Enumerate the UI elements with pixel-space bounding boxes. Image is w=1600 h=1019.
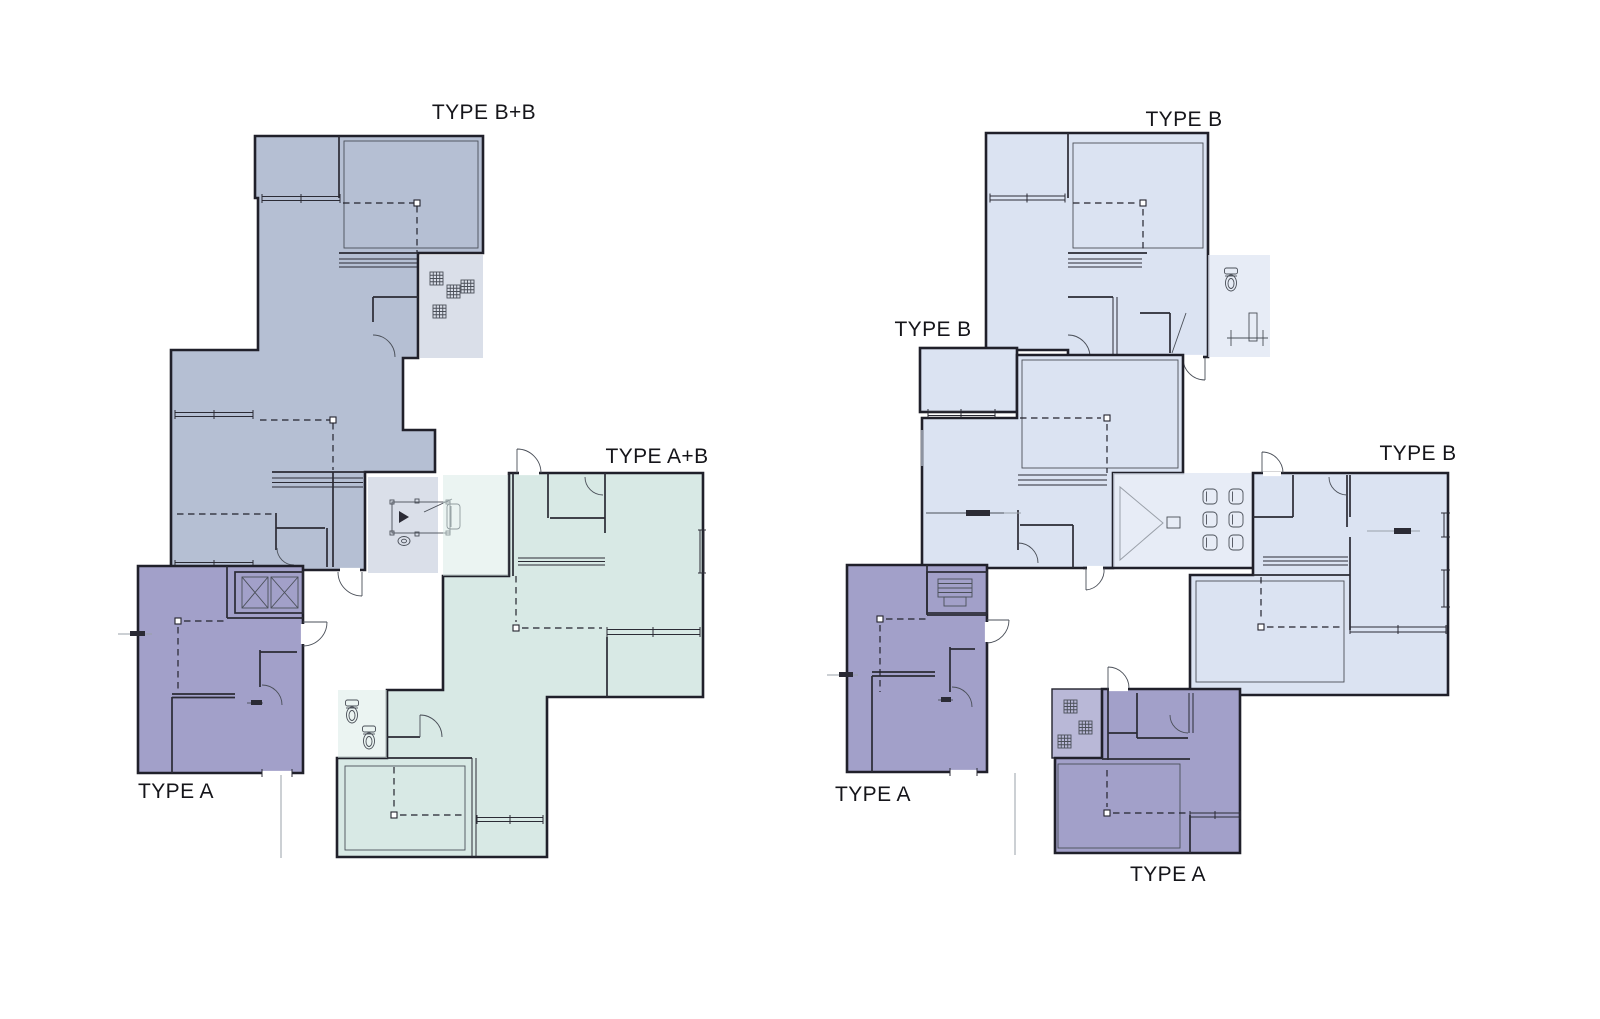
door-leaf [251,700,262,705]
door-leaf [941,697,951,702]
corridor-area [1113,473,1253,568]
window-icon [1394,528,1411,534]
door-leaf [966,510,990,516]
label-type-b-right: TYPE B [1379,442,1456,465]
dash-marker [513,625,519,631]
unit-a-footprint [138,566,303,773]
window-icon [839,672,853,677]
label-type-ab: TYPE A+B [605,445,708,468]
dash-marker [330,417,336,423]
label-type-a-right: TYPE A [1130,863,1206,886]
label-type-a-left: TYPE A [138,780,214,803]
unit-b-mid-balcony [920,348,1017,412]
floor-plan-canvas: TYPE B+B TYPE A+B TYPE A [0,0,1600,1019]
unit-bb-shared-terrace [368,477,438,573]
label-type-b-top: TYPE B [1145,108,1222,131]
dash-marker [1104,415,1110,421]
label-type-b-mid: TYPE B [894,318,971,341]
unit-b-top-terrace [1208,255,1270,357]
unit-ab-wc-area [338,690,387,758]
dash-marker [1104,810,1110,816]
dash-marker [1140,200,1146,206]
unit-type-a-bottom-right [1052,667,1240,853]
unit-ab-shared-terrace [443,475,509,576]
unit-b-top-footprint [986,133,1208,357]
dash-marker [1258,624,1264,630]
dash-marker [877,616,883,622]
unit-a2-footprint [847,565,987,772]
dash-marker [175,618,181,624]
unit-bb-terrace [420,255,483,358]
label-type-a-left: TYPE A [835,783,911,806]
window-icon [130,631,145,636]
dash-marker [414,200,420,206]
label-type-bb: TYPE B+B [432,101,536,124]
dash-marker [391,812,397,818]
